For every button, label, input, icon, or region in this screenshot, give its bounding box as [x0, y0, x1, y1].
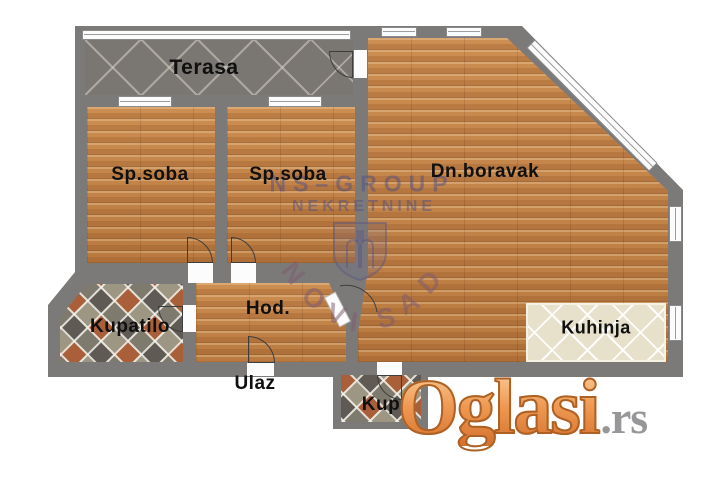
- bathroom-door-gap: [183, 305, 196, 332]
- oglasi-logo: Oglasi .rs: [398, 368, 647, 446]
- living-room-label: Dn.boravak: [431, 161, 539, 183]
- terrace-window: [82, 30, 351, 40]
- terrace-door-gap: [354, 50, 367, 78]
- right-window-1: [669, 206, 682, 242]
- right-window-2: [669, 305, 682, 341]
- terrace-label: Terasa: [169, 56, 238, 80]
- kitchen-label: Kuhinja: [561, 318, 631, 339]
- hall-label: Hod.: [246, 298, 290, 320]
- floor-plan-image: NS–GROUP NEKRETNINE N O V I S A D Terasa…: [0, 0, 726, 494]
- bedroom1-label: Sp.soba: [111, 164, 188, 186]
- oglasi-logo-name: Oglasi: [398, 368, 598, 446]
- wc-label: Kup: [362, 394, 400, 416]
- bedroom2-door-gap: [231, 263, 256, 283]
- living-window-1: [381, 27, 417, 37]
- bedroom1-door-gap: [188, 263, 213, 283]
- bedroom2-label: Sp.soba: [249, 164, 326, 186]
- bathroom-label: Kupatilo: [90, 316, 170, 338]
- bedroom2-window: [268, 96, 322, 107]
- oglasi-logo-tld: .rs: [600, 395, 647, 441]
- living-window-2: [446, 27, 482, 37]
- bedroom1-window: [118, 96, 172, 107]
- entrance-label: Ulaz: [234, 373, 275, 395]
